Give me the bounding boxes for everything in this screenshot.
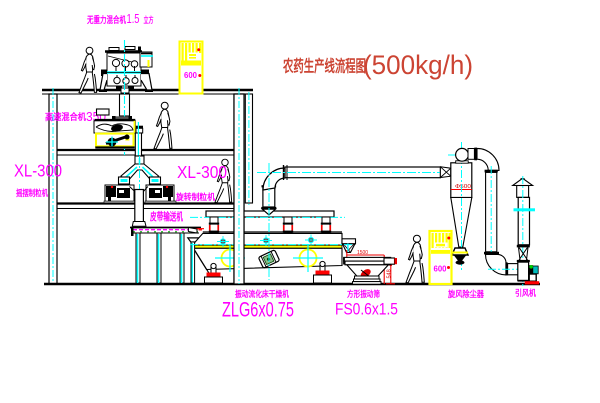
svg-text:立方: 立方 — [144, 15, 154, 25]
svg-text:XL-300: XL-300 — [177, 162, 227, 182]
svg-text:摇摆制粒机: 摇摆制粒机 — [16, 188, 48, 198]
svg-text:旋风除尘器: 旋风除尘器 — [447, 289, 484, 299]
svg-text:1500: 1500 — [357, 250, 368, 256]
svg-text:振动流化床干燥机: 振动流化床干燥机 — [235, 289, 289, 299]
svg-text:高速混合机: 高速混合机 — [45, 111, 86, 122]
svg-text:(500kg/h): (500kg/h) — [363, 50, 473, 80]
svg-text:600: 600 — [184, 71, 198, 80]
svg-text:无重力混合机: 无重力混合机 — [86, 14, 126, 25]
svg-text:600: 600 — [434, 264, 447, 274]
svg-text:引风机: 引风机 — [515, 288, 536, 298]
svg-text:方形振动筛: 方形振动筛 — [347, 289, 380, 299]
svg-text:旋转制粒机: 旋转制粒机 — [175, 192, 215, 202]
svg-text:1.5: 1.5 — [127, 12, 140, 26]
svg-text:548: 548 — [386, 269, 392, 278]
svg-text:XL-300: XL-300 — [14, 161, 62, 181]
svg-text:ZLG6x0.75: ZLG6x0.75 — [222, 299, 294, 322]
svg-text:FS0.6x1.5: FS0.6x1.5 — [335, 301, 398, 319]
svg-text:农药生产线流程图: 农药生产线流程图 — [282, 57, 366, 76]
svg-text:皮带输送机: 皮带输送机 — [149, 210, 183, 223]
